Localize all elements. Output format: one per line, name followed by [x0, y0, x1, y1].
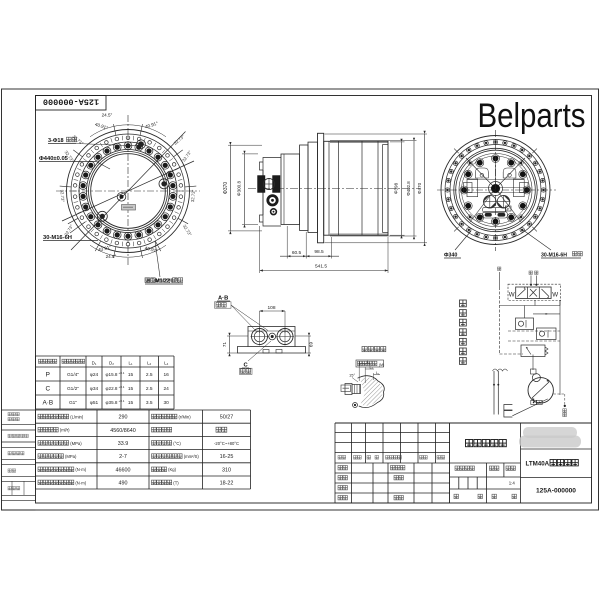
svg-text:(°C): (°C)	[173, 441, 181, 446]
svg-text:(MPa): (MPa)	[70, 441, 82, 446]
svg-text:1:4: 1:4	[509, 481, 516, 486]
svg-text:2.5: 2.5	[146, 372, 153, 378]
svg-text:φ51: φ51	[90, 400, 99, 406]
svg-text:φ35.8: φ35.8	[106, 400, 118, 405]
svg-text:M1/22: M1/22	[156, 279, 171, 285]
svg-text:(mm²/S): (mm²/S)	[184, 454, 200, 459]
svg-text:L₂: L₂	[370, 365, 374, 369]
svg-text:16: 16	[164, 372, 170, 378]
svg-text:P: P	[46, 372, 50, 379]
svg-text:Belparts: Belparts	[478, 97, 586, 135]
svg-text:4560/8640: 4560/8640	[110, 428, 135, 434]
svg-text:Φ470: Φ470	[417, 182, 422, 194]
svg-text:3.5: 3.5	[146, 400, 153, 406]
svg-text:L₄: L₄	[367, 360, 371, 364]
svg-text:L₄: L₄	[164, 361, 168, 366]
svg-text:(M): (M)	[379, 363, 384, 367]
svg-text:-20°C~+80°C: -20°C~+80°C	[214, 441, 239, 446]
svg-text:15°: 15°	[349, 373, 355, 378]
svg-text:69: 69	[309, 342, 314, 348]
svg-text:Φ440±0.05: Φ440±0.05	[39, 156, 69, 162]
svg-text:A·B: A·B	[218, 296, 228, 302]
svg-text:24.5°: 24.5°	[102, 113, 113, 118]
svg-text:φ24: φ24	[90, 372, 99, 378]
svg-text:(r/Min): (r/Min)	[179, 414, 192, 419]
svg-text:310: 310	[222, 467, 231, 473]
svg-text:50/27: 50/27	[220, 415, 234, 421]
svg-text:24: 24	[164, 386, 170, 392]
svg-text:Φ402.8: Φ402.8	[406, 181, 411, 196]
svg-text:+0.1: +0.1	[119, 371, 125, 375]
svg-text:Φ398: Φ398	[394, 182, 399, 194]
svg-text:33.9: 33.9	[118, 441, 129, 447]
svg-text:(L/min): (L/min)	[70, 414, 84, 419]
svg-text:(MPa): (MPa)	[65, 454, 77, 459]
svg-text:G1/2": G1/2"	[67, 386, 79, 392]
svg-text:98.5: 98.5	[314, 249, 324, 255]
svg-text:15: 15	[128, 400, 134, 406]
svg-text:A·B: A·B	[42, 400, 53, 407]
svg-text:Φ300.8: Φ300.8	[237, 180, 242, 196]
svg-text:Φ340: Φ340	[444, 253, 457, 259]
svg-text:P: P	[507, 207, 510, 211]
svg-text:290: 290	[119, 415, 128, 421]
svg-text:541.5: 541.5	[315, 264, 327, 270]
svg-text:2.5: 2.5	[146, 386, 153, 392]
svg-text:φ22.8: φ22.8	[106, 386, 118, 391]
svg-text:L₁: L₁	[129, 361, 133, 366]
svg-text:φ15.8: φ15.8	[106, 372, 118, 377]
svg-text:490: 490	[119, 481, 128, 487]
svg-text:60.5: 60.5	[292, 250, 302, 256]
svg-text:3-Φ18: 3-Φ18	[48, 138, 64, 144]
svg-text:(Kg): (Kg)	[168, 467, 177, 472]
svg-text:2-7: 2-7	[119, 454, 127, 460]
svg-text:24.5°: 24.5°	[106, 254, 117, 259]
svg-text:46600: 46600	[116, 467, 131, 473]
svg-text:(ml/r): (ml/r)	[60, 428, 70, 433]
svg-text:18-22: 18-22	[220, 481, 234, 487]
svg-text:G1/4": G1/4"	[67, 372, 79, 378]
svg-text:(T): (T)	[173, 480, 179, 485]
svg-text:W: W	[509, 292, 515, 299]
svg-text:30: 30	[164, 400, 170, 406]
svg-text:30-M16-6H: 30-M16-6H	[541, 253, 567, 259]
svg-text:15: 15	[128, 386, 134, 392]
svg-text:LTM40A: LTM40A	[526, 461, 550, 468]
svg-text:C: C	[45, 386, 50, 393]
svg-text:L₂: L₂	[147, 361, 151, 366]
svg-text:D₂: D₂	[109, 361, 114, 366]
svg-text:W: W	[552, 292, 558, 299]
svg-text:φ34: φ34	[90, 386, 99, 392]
svg-text:+0.1: +0.1	[119, 385, 125, 389]
svg-text:D₁: D₁	[92, 361, 97, 366]
svg-text:125A-000000: 125A-000000	[43, 97, 99, 107]
svg-text:(N·m): (N·m)	[75, 467, 86, 472]
svg-text:+0.1: +0.1	[119, 399, 125, 403]
svg-text:16-25: 16-25	[220, 454, 234, 460]
svg-text:71: 71	[222, 342, 227, 348]
svg-text:15: 15	[128, 372, 134, 378]
svg-text:G1": G1"	[69, 400, 77, 406]
svg-text:125A-000000: 125A-000000	[536, 488, 576, 495]
svg-text:Φ370: Φ370	[223, 182, 229, 195]
svg-text:(N·m): (N·m)	[75, 480, 86, 485]
svg-text:108: 108	[267, 305, 275, 311]
